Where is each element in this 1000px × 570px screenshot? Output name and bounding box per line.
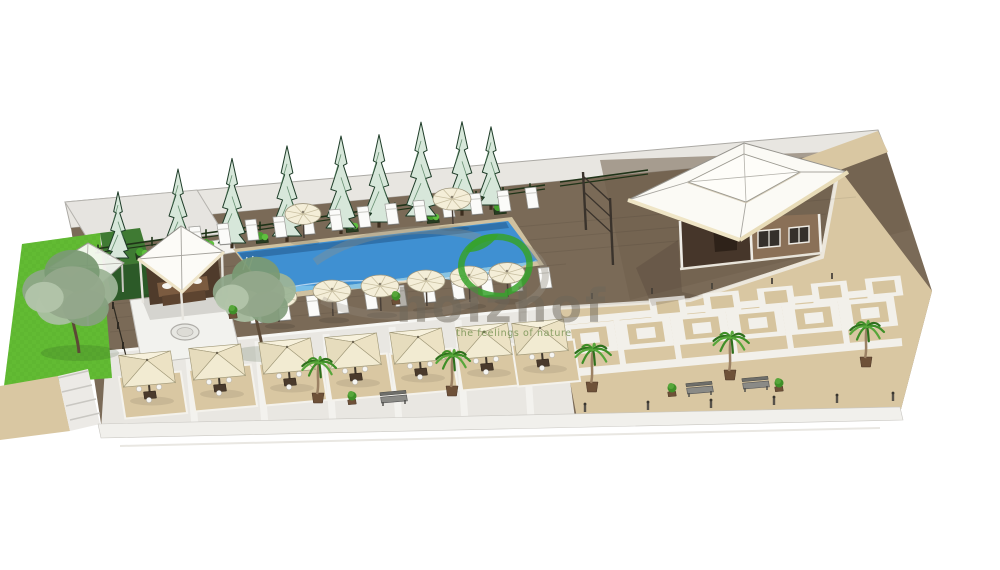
bollard — [647, 401, 650, 410]
bollard — [892, 392, 895, 401]
garden-path — [0, 376, 70, 440]
potted-shrub — [775, 378, 784, 392]
plaza-tile-nested — [618, 316, 674, 350]
watermark-tagline-text: the feelings of nature — [456, 328, 571, 339]
potted-shrub — [668, 383, 677, 397]
plaza-tile-plain — [865, 276, 904, 299]
bollard — [710, 399, 713, 408]
plaza-tile-plain — [811, 281, 850, 304]
potted-shrub — [229, 305, 238, 319]
site-plan-rendering: holzhof the feelings of nature — [0, 0, 1000, 570]
plaza-tile-nested — [786, 301, 842, 335]
bollard — [773, 396, 776, 405]
bollard — [836, 394, 839, 403]
patio-spa-inner — [177, 328, 193, 337]
plaza-tile-nested — [730, 306, 786, 340]
watermark-brand-text: holzhof — [396, 279, 608, 333]
plaza-tile-nested — [674, 311, 730, 345]
walkway-post — [711, 283, 713, 289]
bollard — [584, 403, 587, 412]
plaza-tile-plain — [757, 286, 796, 309]
walkway-post — [771, 278, 773, 284]
potted-shrub — [348, 391, 357, 405]
rendering-canvas: holzhof the feelings of nature — [0, 0, 1000, 570]
walkway-post — [831, 273, 833, 279]
